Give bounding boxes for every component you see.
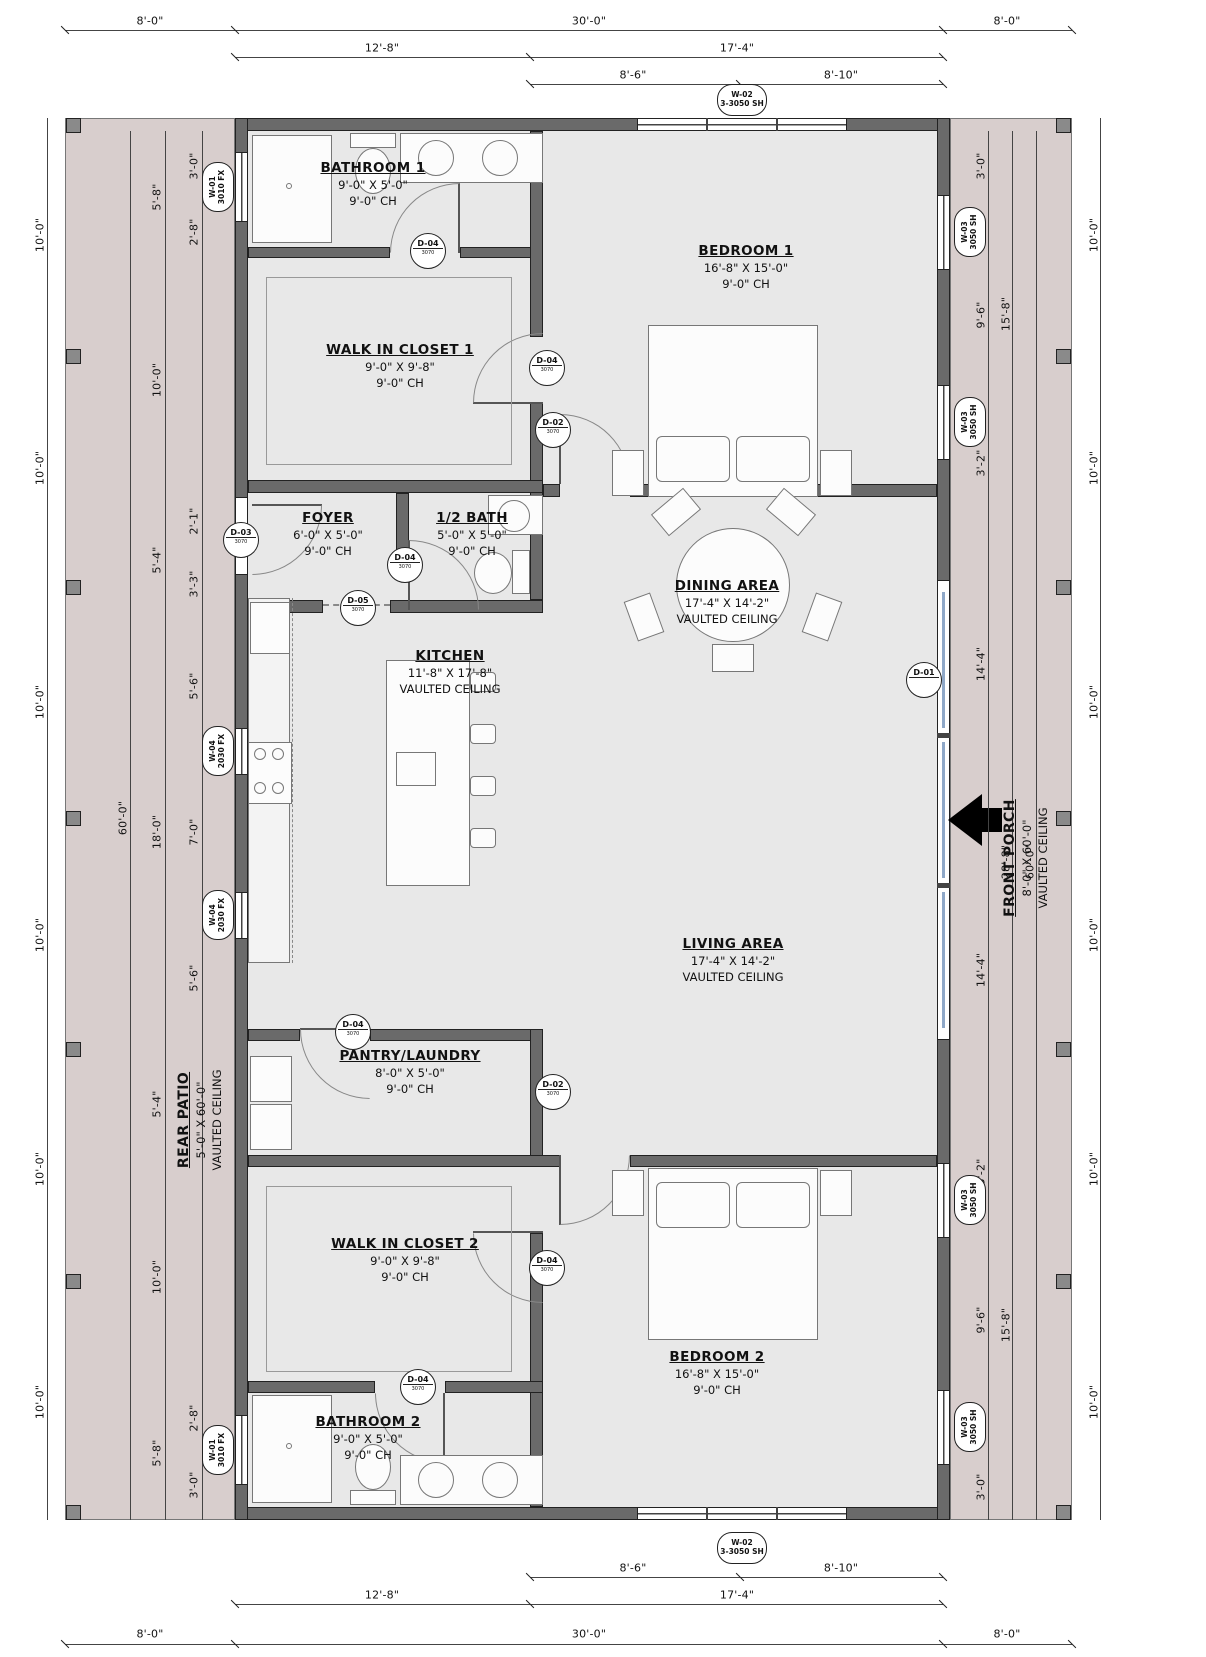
dim-label: 10'-0" — [1088, 218, 1101, 252]
burner — [254, 782, 266, 794]
room-ceiling: 9'-0" CH — [293, 544, 363, 558]
room-dims: 9'-0" X 9'-8" — [331, 1254, 479, 1268]
window-tag-w03: W-03 3050 SH — [954, 207, 986, 257]
burner — [272, 782, 284, 794]
room-name: BATHROOM 1 — [320, 160, 425, 176]
wall-pantry-top — [370, 1029, 543, 1041]
dim-label: 10'-0" — [34, 918, 47, 952]
dim-label: 8'-0" — [993, 1628, 1020, 1641]
dim-label: 9'-6" — [975, 1306, 988, 1333]
patio-post — [66, 349, 81, 364]
room-dims: 8'-0" X 60'-0" — [1020, 799, 1034, 917]
room-dims: 5'-0" X 5'-0" — [436, 528, 508, 542]
room-label-dining: DINING AREA 17'-4" X 14'-2" VAULTED CEIL… — [675, 578, 780, 626]
window-tag-w02: W-02 3-3050 SH — [717, 1532, 767, 1564]
nightstand — [612, 450, 644, 496]
room-label-wic2: WALK IN CLOSET 2 9'-0" X 9'-8" 9'-0" CH — [331, 1236, 479, 1284]
window-w03-2 — [937, 385, 950, 460]
door-tag-code: D-04 — [338, 1015, 367, 1030]
dim-label: 3'-0" — [975, 152, 988, 179]
dim-line — [235, 57, 943, 58]
pillow — [736, 1182, 810, 1228]
window-w03-3 — [937, 1163, 950, 1238]
wall-pantry-top — [248, 1029, 300, 1041]
dim-label: 5'-4" — [151, 1090, 164, 1117]
room-ceiling: 9'-0" CH — [331, 1270, 479, 1284]
room-label-living: LIVING AREA 17'-4" X 14'-2" VAULTED CEIL… — [682, 936, 783, 984]
room-name: REAR PATIO — [176, 1069, 192, 1170]
dim-line — [235, 1604, 943, 1605]
dim-label: 10'-0" — [34, 685, 47, 719]
dim-label: 10'-0" — [151, 1260, 164, 1294]
door-tag-code: D-03 — [226, 523, 255, 538]
window-tag-size: 3050 SH — [970, 214, 979, 249]
wall-exterior-left — [235, 118, 248, 1520]
window-tag-w03: W-03 3050 SH — [954, 1175, 986, 1225]
door-tag-code: D-02 — [538, 413, 567, 428]
patio-post — [66, 1505, 81, 1520]
dim-label: 9'-6" — [975, 301, 988, 328]
dim-label: 30'-0" — [572, 15, 606, 28]
window-w03-4 — [937, 1390, 950, 1465]
door-tag-d03: D-03 3070 — [223, 522, 259, 558]
front-door-rail — [937, 733, 950, 738]
dim-label: 14'-4" — [975, 647, 988, 681]
nightstand — [820, 1170, 852, 1216]
dim-line — [530, 1577, 943, 1578]
door-tag-code: D-02 — [538, 1075, 567, 1090]
wall-pantry-closet2 — [248, 1155, 560, 1167]
room-label-pantry: PANTRY/LAUNDRY 8'-0" X 5'-0" 9'-0" CH — [339, 1048, 480, 1096]
patio-post — [66, 1274, 81, 1289]
room-ceiling: VAULTED CEILING — [682, 970, 783, 984]
door-tag-d02: D-02 3070 — [535, 1074, 571, 1110]
door-tag-size: 3070 — [541, 366, 554, 373]
dim-label: 3'-0" — [975, 1473, 988, 1500]
dim-label: 7'-0" — [188, 818, 201, 845]
dim-label: 3'-0" — [188, 152, 201, 179]
dim-label: 2'-1" — [188, 507, 201, 534]
dim-label: 10'-0" — [34, 451, 47, 485]
room-dims: 9'-0" X 5'-0" — [315, 1432, 420, 1446]
window-tag-size: 3050 SH — [970, 404, 979, 439]
door-tag-d04: D-04 3070 — [400, 1369, 436, 1405]
window-w01-upper — [235, 152, 248, 222]
dim-line — [988, 131, 989, 1520]
room-ceiling: 9'-0" CH — [320, 194, 425, 208]
porch-post — [1056, 118, 1071, 133]
room-name: WALK IN CLOSET 1 — [326, 342, 474, 358]
dim-line — [65, 30, 1072, 31]
toilet-tank-bath1 — [350, 133, 396, 148]
dim-label: 2'-8" — [188, 218, 201, 245]
porch-post — [1056, 1274, 1071, 1289]
window-mullion — [706, 1507, 708, 1520]
room-ceiling: 9'-0" CH — [436, 544, 508, 558]
door-tag-d04: D-04 3070 — [387, 547, 423, 583]
window-w04-lower — [235, 892, 248, 939]
door-tag-size: 3070 — [422, 249, 435, 256]
burner — [254, 748, 266, 760]
window-w02-bottom — [637, 1507, 847, 1520]
door-tag-code: D-04 — [532, 1251, 561, 1266]
floor-plan: 8'-0" 30'-0" 8'-0" 12'-8" 17'-4" 8'-6" 8… — [0, 0, 1206, 1657]
window-tag-size: 2030 FX — [218, 734, 227, 768]
door-tag-d04: D-04 3070 — [410, 233, 446, 269]
barstool — [470, 724, 496, 744]
window-tag-w04: W-04 2030 FX — [202, 890, 234, 940]
dim-label: 12'-8" — [365, 42, 399, 55]
dim-line — [1100, 118, 1101, 1520]
dim-label: 2'-8" — [188, 1404, 201, 1431]
patio-post — [66, 811, 81, 826]
room-dims: 16'-8" X 15'-0" — [698, 261, 793, 275]
window-tag-w01: W-01 3010 FX — [202, 162, 234, 212]
door-tag-d04: D-04 3070 — [529, 350, 565, 386]
room-ceiling: 9'-0" CH — [315, 1448, 420, 1462]
nightstand — [612, 1170, 644, 1216]
dim-label: 5'-4" — [151, 546, 164, 573]
barstool — [470, 776, 496, 796]
room-label-foyer: FOYER 6'-0" X 5'-0" 9'-0" CH — [293, 510, 363, 558]
washer — [250, 1056, 292, 1102]
room-ceiling: 9'-0" CH — [669, 1383, 764, 1397]
wall-bedroom2-top — [630, 1155, 937, 1167]
dim-label: 8'-6" — [619, 1562, 646, 1575]
dim-label: 10'-0" — [34, 1385, 47, 1419]
room-dims: 8'-0" X 5'-0" — [339, 1066, 480, 1080]
front-door-panel — [942, 592, 945, 728]
dim-label: 15'-8" — [1000, 297, 1013, 331]
dim-line — [65, 1644, 1072, 1645]
window-tag-size: 3050 SH — [970, 1182, 979, 1217]
room-dims: 17'-4" X 14'-2" — [682, 954, 783, 968]
door-tag-d04: D-04 3070 — [529, 1250, 565, 1286]
entry-arrow-stem — [982, 808, 1002, 832]
dim-label: 8'-0" — [993, 15, 1020, 28]
patio-post — [66, 580, 81, 595]
dim-label: 3'-3" — [188, 570, 201, 597]
room-label-bathroom1: BATHROOM 1 9'-0" X 5'-0" 9'-0" CH — [320, 160, 425, 208]
sink-bath2 — [418, 1462, 454, 1498]
door-tag-code: D-05 — [343, 591, 372, 606]
dim-label: 10'-0" — [1088, 1152, 1101, 1186]
door-tag-d02: D-02 3070 — [535, 412, 571, 448]
pillow — [656, 436, 730, 482]
patio-post — [66, 118, 81, 133]
wall-bedroom1 — [543, 484, 560, 497]
door-tag-size: 3070 — [547, 1090, 560, 1097]
room-name: 1/2 BATH — [436, 510, 508, 526]
window-tag-w03: W-03 3050 SH — [954, 397, 986, 447]
room-label-bathroom2: BATHROOM 2 9'-0" X 5'-0" 9'-0" CH — [315, 1414, 420, 1462]
dim-line — [165, 131, 166, 1520]
porch-post — [1056, 1505, 1071, 1520]
front-door-panel — [942, 742, 945, 878]
room-name: DINING AREA — [675, 578, 780, 594]
front-door-rail — [937, 883, 950, 888]
room-dims: 6'-0" X 5'-0" — [293, 528, 363, 542]
room-name: PANTRY/LAUNDRY — [339, 1048, 480, 1064]
upper-cabinet-line — [292, 598, 293, 963]
pillow — [736, 436, 810, 482]
toilet-tank-bath2 — [350, 1490, 396, 1505]
window-tag-size: 3-3050 SH — [720, 100, 764, 109]
door-tag-size: 3070 — [399, 563, 412, 570]
dim-label: 8'-0" — [136, 15, 163, 28]
room-ceiling: VAULTED CEILING — [675, 612, 780, 626]
door-tag-d05: D-05 3070 — [340, 590, 376, 626]
sink-bath1 — [482, 140, 518, 176]
door-tag-size: 3070 — [235, 538, 248, 545]
dim-label: 17'-4" — [720, 42, 754, 55]
dim-label: 3'-2" — [975, 449, 988, 476]
door-tag-d04: D-04 3070 — [335, 1014, 371, 1050]
window-tag-size: 3010 FX — [218, 1433, 227, 1467]
dim-label: 5'-8" — [151, 183, 164, 210]
window-tag-size: 3050 SH — [970, 1409, 979, 1444]
dim-label: 5'-8" — [151, 1439, 164, 1466]
room-dims: 17'-4" X 14'-2" — [675, 596, 780, 610]
dim-label: 10'-0" — [151, 363, 164, 397]
room-ceiling: VAULTED CEILING — [210, 1069, 224, 1170]
dim-label: 8'-0" — [136, 1628, 163, 1641]
room-ceiling: 9'-0" CH — [698, 277, 793, 291]
burner — [272, 748, 284, 760]
window-mullion — [706, 118, 708, 131]
dim-label: 12'-8" — [365, 1589, 399, 1602]
window-w04-upper — [235, 728, 248, 775]
window-tag-w03: W-03 3050 SH — [954, 1402, 986, 1452]
door-tag-code: D-04 — [413, 234, 442, 249]
window-w01-lower — [235, 1415, 248, 1485]
dim-label: 10'-0" — [1088, 685, 1101, 719]
patio-post — [66, 1042, 81, 1057]
room-name: KITCHEN — [399, 648, 500, 664]
room-name: FOYER — [293, 510, 363, 526]
window-w02-top — [637, 118, 847, 131]
dim-label: 15'-8" — [1000, 1308, 1013, 1342]
dim-label: 10'-0" — [1088, 451, 1101, 485]
room-label-rear-patio: REAR PATIO 5'-0" X 60'-0" VAULTED CEILIN… — [176, 1069, 224, 1170]
door-tag-d01: D-01 — [906, 662, 942, 698]
window-tag-size: 3010 FX — [218, 170, 227, 204]
dryer — [250, 1104, 292, 1150]
room-ceiling: VAULTED CEILING — [399, 682, 500, 696]
wall-bath2-top — [248, 1381, 375, 1393]
door-tag-code: D-04 — [532, 351, 561, 366]
door-tag-size: 3070 — [352, 606, 365, 613]
porch-post — [1056, 1042, 1071, 1057]
window-tag-size: 2030 FX — [218, 898, 227, 932]
window-w03-1 — [937, 195, 950, 270]
door-tag-code: D-01 — [909, 663, 938, 678]
pillow — [656, 1182, 730, 1228]
dim-line — [47, 118, 48, 1520]
room-label-bedroom2: BEDROOM 2 16'-8" X 15'-0" 9'-0" CH — [669, 1349, 764, 1397]
dim-label: 5'-6" — [188, 672, 201, 699]
shower-drain — [286, 1443, 292, 1449]
room-name: FRONT PORCH — [1002, 799, 1018, 917]
room-name: BEDROOM 2 — [669, 1349, 764, 1365]
room-dims: 11'-8" X 17'-8" — [399, 666, 500, 680]
dim-label: 10'-0" — [34, 218, 47, 252]
dim-label: 8'-10" — [824, 1562, 858, 1575]
window-mullion — [776, 118, 778, 131]
room-dims: 9'-0" X 9'-8" — [326, 360, 474, 374]
room-dims: 5'-0" X 60'-0" — [194, 1069, 208, 1170]
refrigerator — [250, 602, 290, 654]
door-tag-size: 3070 — [347, 1030, 360, 1037]
room-dims: 16'-8" X 15'-0" — [669, 1367, 764, 1381]
nightstand — [820, 450, 852, 496]
dim-line — [130, 131, 131, 1520]
room-name: BEDROOM 1 — [698, 243, 793, 259]
dim-label: 10'-0" — [1088, 918, 1101, 952]
toilet-bowl-halfbath — [474, 552, 512, 594]
dim-label: 10'-0" — [1088, 1385, 1101, 1419]
dim-label: 8'-6" — [619, 69, 646, 82]
window-tag-w01: W-01 3010 FX — [202, 1425, 234, 1475]
toilet-tank-halfbath — [512, 550, 530, 594]
shower-drain — [286, 183, 292, 189]
door-tag-size: 3070 — [547, 428, 560, 435]
dim-label: 10'-0" — [34, 1152, 47, 1186]
dim-label: 60'-0" — [117, 801, 130, 835]
wall-bath1 — [248, 247, 390, 258]
room-name: LIVING AREA — [682, 936, 783, 952]
wall-closet1-foyer — [248, 480, 543, 493]
porch-post — [1056, 811, 1071, 826]
dim-label: 14'-4" — [975, 953, 988, 987]
dining-chair — [712, 644, 754, 672]
door-tag-code: D-04 — [403, 1370, 432, 1385]
room-label-bedroom1: BEDROOM 1 16'-8" X 15'-0" 9'-0" CH — [698, 243, 793, 291]
room-label-wic1: WALK IN CLOSET 1 9'-0" X 9'-8" 9'-0" CH — [326, 342, 474, 390]
window-tag-size: 3-3050 SH — [720, 1548, 764, 1557]
dim-label: 8'-10" — [824, 69, 858, 82]
door-tag-size: 3070 — [541, 1266, 554, 1273]
dim-label: 18'-0" — [151, 815, 164, 849]
window-mullion — [776, 1507, 778, 1520]
room-name: BATHROOM 2 — [315, 1414, 420, 1430]
room-name: WALK IN CLOSET 2 — [331, 1236, 479, 1252]
barstool — [470, 828, 496, 848]
door-tag-code: D-04 — [390, 548, 419, 563]
wall-bath2-top — [445, 1381, 543, 1393]
room-ceiling: 9'-0" CH — [339, 1082, 480, 1096]
dim-line — [202, 131, 203, 1520]
room-label-front-porch: FRONT PORCH 8'-0" X 60'-0" VAULTED CEILI… — [1002, 799, 1050, 917]
dim-label: 30'-0" — [572, 1628, 606, 1641]
room-ceiling: VAULTED CEILING — [1036, 799, 1050, 917]
room-label-halfbath: 1/2 BATH 5'-0" X 5'-0" 9'-0" CH — [436, 510, 508, 558]
window-tag-w04: W-04 2030 FX — [202, 726, 234, 776]
porch-post — [1056, 349, 1071, 364]
room-dims: 9'-0" X 5'-0" — [320, 178, 425, 192]
dim-label: 17'-4" — [720, 1589, 754, 1602]
dim-label: 3'-0" — [188, 1471, 201, 1498]
dim-label: 5'-6" — [188, 964, 201, 991]
room-label-kitchen: KITCHEN 11'-8" X 17'-8" VAULTED CEILING — [399, 648, 500, 696]
room-ceiling: 9'-0" CH — [326, 376, 474, 390]
window-tag-w02: W-02 3-3050 SH — [717, 84, 767, 116]
porch-post — [1056, 580, 1071, 595]
front-door-panel — [942, 892, 945, 1028]
sink-bath2 — [482, 1462, 518, 1498]
entry-arrow — [948, 794, 982, 846]
door-tag-size: 3070 — [412, 1385, 425, 1392]
island-sink — [396, 752, 436, 786]
